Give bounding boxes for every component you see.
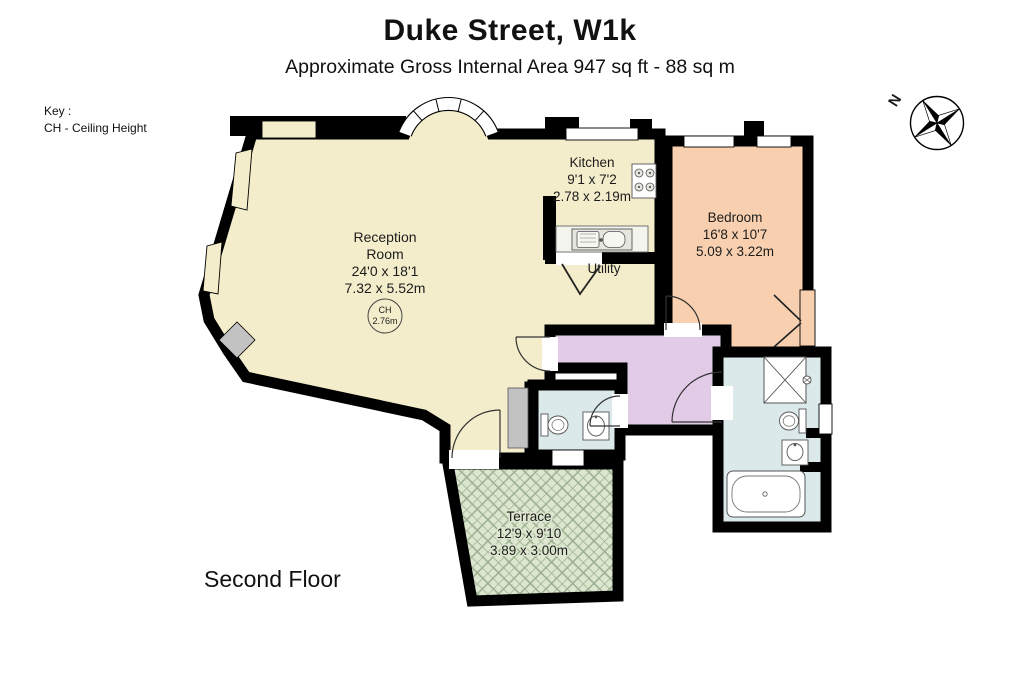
svg-text:12'9 x 9'10: 12'9 x 9'10 (497, 526, 561, 541)
floorplan-drawing: CH 2.76m Reception Room 24'0 x 18'1 7.32… (0, 0, 1020, 673)
bedroom-label: Bedroom 16'8 x 10'7 5.09 x 3.22m (696, 210, 774, 259)
svg-text:Terrace: Terrace (506, 509, 551, 524)
svg-text:5.09 x 3.22m: 5.09 x 3.22m (696, 244, 774, 259)
wall-segment (744, 121, 764, 136)
door-opening-wc (612, 394, 628, 428)
shower-icon (764, 357, 811, 403)
wall-segment (230, 116, 406, 136)
svg-text:2.78 x 2.19m: 2.78 x 2.19m (553, 189, 631, 204)
svg-text:Bedroom: Bedroom (708, 210, 763, 225)
wall-segment (543, 196, 556, 260)
svg-text:Room: Room (366, 246, 403, 262)
bathtub-icon (727, 471, 805, 517)
kitchen-sink-icon (572, 229, 632, 250)
north-label: N (885, 92, 905, 110)
ch-value: 2.76m (372, 316, 397, 326)
window-bedroom-top-2 (757, 136, 791, 147)
window-kitchen-top (566, 128, 638, 140)
hob-icon (632, 164, 656, 198)
reception-room-label: Reception Room 24'0 x 18'1 7.32 x 5.52m (345, 229, 426, 296)
floorplan-page: Duke Street, W1k Approximate Gross Inter… (0, 0, 1020, 673)
door-opening-ensuite (711, 386, 733, 420)
window-bedroom-top-1 (684, 136, 734, 147)
door-opening-terrace (449, 450, 499, 469)
window-ensuite-right (819, 404, 832, 434)
compass-rose-icon: N (885, 86, 974, 160)
svg-text:3.89 x 3.00m: 3.89 x 3.00m (490, 543, 568, 558)
toilet-icon (541, 414, 568, 436)
svg-text:Reception: Reception (353, 229, 416, 245)
svg-text:9'1 x 7'2: 9'1 x 7'2 (567, 172, 616, 187)
basin-icon (782, 440, 808, 465)
window-wc-terrace (552, 450, 584, 466)
utility-label: Utility (588, 261, 621, 276)
ch-abbr: CH (379, 305, 392, 315)
door-opening-bedroom (664, 323, 702, 337)
door-opening-reception (542, 337, 558, 371)
svg-text:16'8 x 10'7: 16'8 x 10'7 (703, 227, 767, 242)
cupboard-duct (508, 388, 528, 448)
window-reception-top (262, 121, 316, 138)
svg-text:24'0 x 18'1: 24'0 x 18'1 (352, 263, 419, 279)
svg-text:Kitchen: Kitchen (569, 155, 614, 170)
svg-text:7.32 x 5.52m: 7.32 x 5.52m (345, 280, 426, 296)
